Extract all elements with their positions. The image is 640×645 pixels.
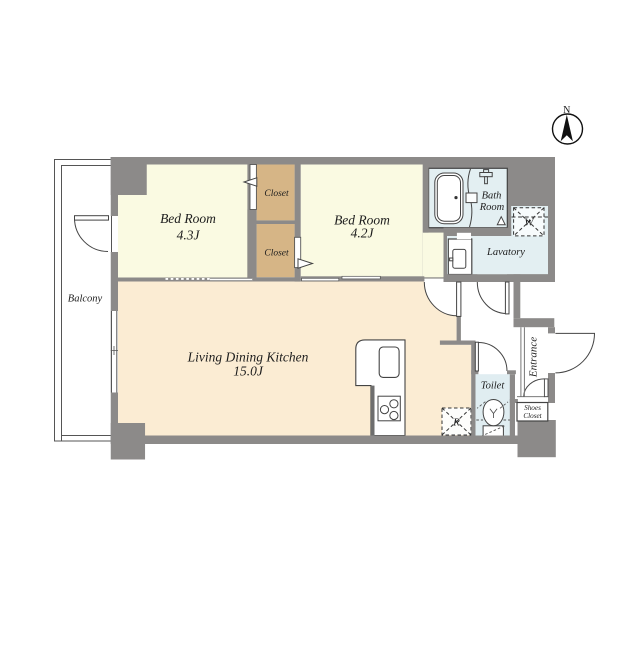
- svg-text:N: N: [563, 105, 570, 116]
- svg-text:Entrance: Entrance: [528, 337, 540, 378]
- svg-text:Balcony: Balcony: [68, 294, 103, 305]
- svg-text:4.3J: 4.3J: [177, 228, 201, 243]
- svg-text:R: R: [452, 417, 460, 429]
- svg-text:15.0J: 15.0J: [233, 364, 264, 379]
- svg-text:Closet: Closet: [264, 189, 289, 199]
- svg-text:Toilet: Toilet: [481, 381, 506, 392]
- svg-text:W: W: [524, 217, 534, 229]
- svg-text:Closet: Closet: [523, 412, 542, 420]
- svg-text:Living Dining Kitchen: Living Dining Kitchen: [187, 350, 309, 365]
- svg-text:Bed Room: Bed Room: [160, 211, 216, 226]
- svg-text:Room: Room: [479, 202, 505, 213]
- svg-text:Bath: Bath: [482, 191, 502, 202]
- svg-text:Shoes: Shoes: [524, 404, 541, 412]
- svg-text:4.2J: 4.2J: [351, 226, 375, 241]
- svg-text:Closet: Closet: [264, 249, 289, 259]
- svg-text:Lavatory: Lavatory: [486, 247, 525, 258]
